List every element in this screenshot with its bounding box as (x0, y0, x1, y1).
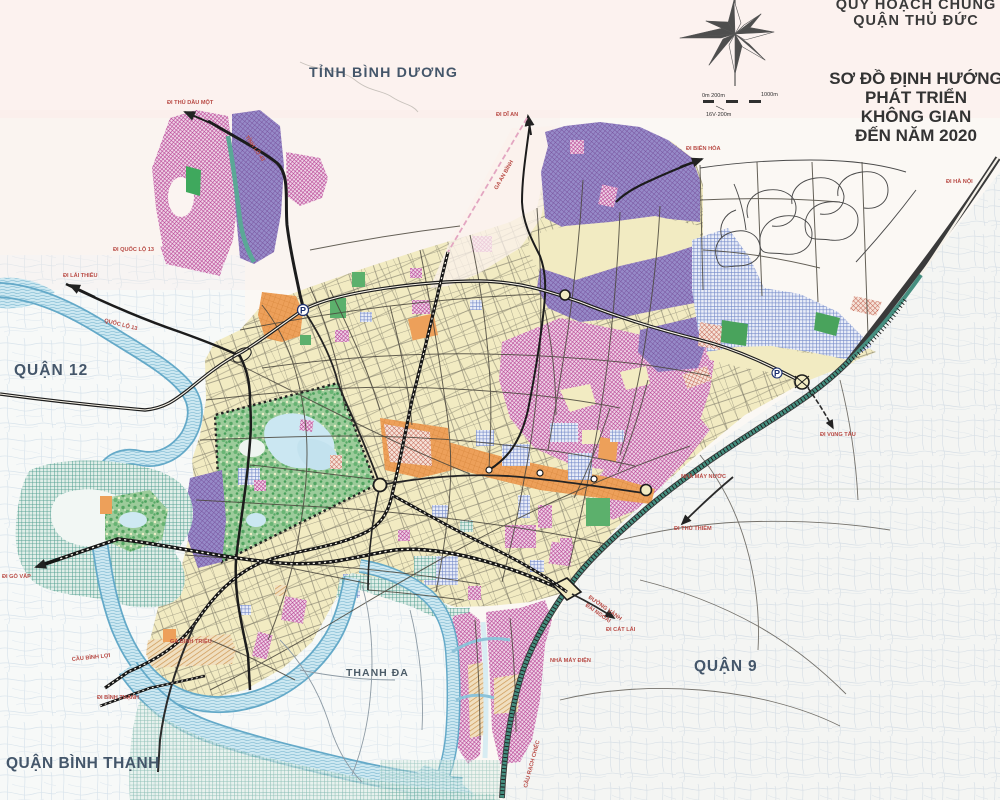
svg-text:QUẬN THỦ ĐỨC: QUẬN THỦ ĐỨC (853, 11, 979, 29)
svg-text:ĐI HÀ NỘI: ĐI HÀ NỘI (946, 177, 973, 185)
svg-text:ĐI DĨ AN: ĐI DĨ AN (496, 111, 518, 118)
svg-text:ĐI LÁI THIÊU: ĐI LÁI THIÊU (63, 271, 98, 279)
svg-text:SƠ ĐỒ ĐỊNH HƯỚNG: SƠ ĐỒ ĐỊNH HƯỚNG (829, 69, 1000, 88)
svg-text:ĐI BIÊN HÒA: ĐI BIÊN HÒA (686, 144, 721, 152)
svg-text:TỈNH BÌNH DƯƠNG: TỈNH BÌNH DƯƠNG (309, 64, 458, 81)
svg-text:ĐI CÁT LÁI: ĐI CÁT LÁI (606, 626, 636, 633)
svg-text:0m 200m: 0m 200m (702, 93, 725, 99)
svg-text:QUẬN 9: QUẬN 9 (694, 657, 757, 675)
svg-text:PHÁT TRIỂN: PHÁT TRIỂN (865, 88, 967, 107)
svg-text:P: P (300, 306, 306, 316)
svg-text:ĐI QUỐC LỘ 13: ĐI QUỐC LỘ 13 (113, 245, 154, 253)
svg-text:KHÔNG GIAN: KHÔNG GIAN (861, 107, 972, 126)
svg-text:ĐI THỦ THIÊM: ĐI THỦ THIÊM (674, 524, 712, 532)
svg-text:GA BÌNH TRIỆU: GA BÌNH TRIỆU (170, 637, 212, 645)
svg-text:ĐI BÌNH THẠNH: ĐI BÌNH THẠNH (97, 693, 139, 701)
svg-text:QUẬN 12: QUẬN 12 (14, 361, 88, 379)
svg-text:16V·200m: 16V·200m (706, 112, 732, 118)
svg-text:QUY HOẠCH CHUNG: QUY HOẠCH CHUNG (836, 0, 997, 13)
svg-text:ĐI THỦ DẦU MỘT: ĐI THỦ DẦU MỘT (167, 98, 214, 106)
svg-text:1000m: 1000m (761, 92, 778, 98)
svg-text:NHÀ MÁY NƯỚC: NHÀ MÁY NƯỚC (681, 472, 726, 480)
svg-text:QUẬN BÌNH THẠNH: QUẬN BÌNH THẠNH (6, 754, 160, 772)
svg-text:ĐI GÒ VẤP: ĐI GÒ VẤP (2, 572, 31, 580)
svg-text:ĐẾN NĂM 2020: ĐẾN NĂM 2020 (855, 126, 977, 145)
svg-text:NHÀ MÁY ĐIỆN: NHÀ MÁY ĐIỆN (550, 656, 591, 664)
svg-text:ĐI VũNG TÀU: ĐI VũNG TÀU (820, 431, 856, 438)
svg-text:THANH ĐA: THANH ĐA (346, 667, 409, 679)
svg-text:P: P (774, 369, 780, 379)
